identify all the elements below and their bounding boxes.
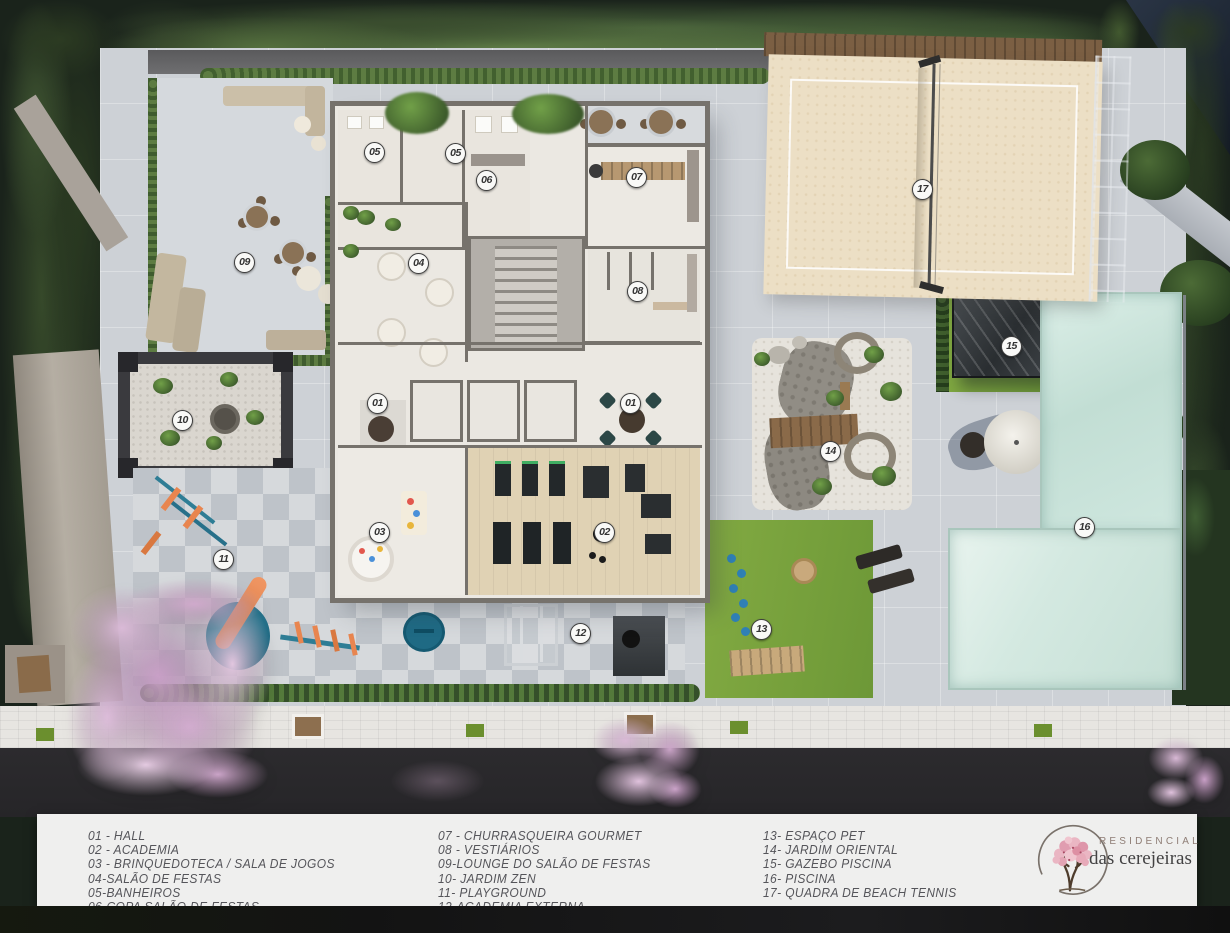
- stairs: [495, 246, 557, 342]
- terrace-07-dining-1: [589, 110, 613, 134]
- zen-plant-5: [206, 436, 222, 450]
- salao-table-1: [377, 252, 406, 281]
- building: [335, 106, 705, 598]
- legend-item: 05-BANHEIROS: [88, 886, 335, 900]
- tree-overhang-1: [385, 92, 449, 134]
- outdoor-gym-bar-2: [540, 606, 543, 662]
- pet-pole-4: [739, 599, 748, 608]
- furniture-dining-set-1: [246, 206, 268, 228]
- room-vestiarios: [588, 249, 700, 341]
- sidewalk-tree-pit-3: [730, 721, 748, 734]
- zen-plant-2: [220, 372, 238, 387]
- cherry-tree-large: [50, 568, 290, 808]
- salao-plant-1: [343, 206, 359, 220]
- bath-court-plant-1: [357, 210, 375, 225]
- zen-post-2: [273, 352, 293, 372]
- hall-small-room-1: [410, 380, 463, 442]
- hall-small-room-2: [467, 380, 520, 442]
- area-beach-tennis: [763, 54, 1102, 302]
- outdoor-gym-grill: [622, 630, 640, 648]
- hall-left-rug: [368, 416, 394, 442]
- area-espaco-pet: [705, 520, 873, 698]
- gym-machine-2: [625, 464, 645, 492]
- legend-item: 09-LOUNGE DO SALÃO DE FESTAS: [438, 857, 651, 871]
- gym-weight-ball: [593, 526, 609, 542]
- zen-plant-4: [160, 430, 180, 446]
- ball-pit-ball-3: [377, 546, 383, 552]
- gym-station-1: [493, 522, 511, 564]
- salao-plant-2: [343, 244, 359, 258]
- pet-pole-5: [731, 613, 740, 622]
- pool-side-table: [960, 432, 986, 458]
- legend-item: 10- JARDIM ZEN: [438, 872, 651, 886]
- area-jardim-oriental: [752, 330, 917, 515]
- court-net-anchor-bottom: [919, 281, 944, 294]
- gym-treadmill-1: [495, 464, 511, 496]
- sidewalk-tree-pit-2: [466, 724, 484, 737]
- pet-barrel: [791, 558, 817, 584]
- entry-mat: [17, 655, 51, 693]
- legend-item: 03 - BRINQUEDOTECA / SALA DE JOGOS: [88, 857, 335, 871]
- wall-07-left: [585, 106, 588, 246]
- logo-text-das-cerejeiras: das cerejeiras: [1089, 848, 1192, 870]
- legend-item: 08 - VESTIÁRIOS: [438, 843, 651, 857]
- gym-treadmill-3: [549, 464, 565, 496]
- furniture-pouf-2: [311, 136, 326, 151]
- bbq-counter: [687, 150, 699, 222]
- area-lounge-salao: [148, 78, 333, 366]
- bath-fixture-1: [347, 116, 362, 129]
- pet-pole-3: [729, 584, 738, 593]
- legend-item: 14- JARDIM ORIENTAL: [763, 843, 957, 857]
- oriental-deck-bridge: [769, 414, 858, 449]
- furniture-pouf-1: [294, 116, 311, 133]
- wall-academia-left: [465, 448, 468, 595]
- terrace-07-dining-2: [649, 110, 673, 134]
- gym-station-2: [523, 522, 541, 564]
- legend-column-1: 01 - HALL02 - ACADEMIA03 - BRINQUEDOTECA…: [88, 829, 345, 914]
- oriental-plant-5: [812, 478, 832, 495]
- gym-machine-1: [583, 466, 609, 498]
- bath-fixture-2: [369, 116, 384, 129]
- oriental-plant-6: [754, 352, 770, 366]
- terrace-hedge-right: [325, 196, 333, 358]
- legend-item: 16- PISCINA: [763, 872, 957, 886]
- gym-dumbbell-2: [599, 556, 606, 563]
- cherry-tree-right: [1138, 728, 1230, 814]
- gym-dumbbell-1: [589, 552, 596, 559]
- wall-08-stall-1: [607, 252, 610, 290]
- tree-overhang-2: [512, 94, 584, 134]
- bath-court-plant-2: [385, 218, 401, 231]
- wall-hall-top: [338, 342, 702, 345]
- legend-column-2: 07 - CHURRASQUEIRA GOURMET08 - VESTIÁRIO…: [438, 829, 659, 914]
- zen-post-1: [118, 352, 138, 372]
- hall-right-table: [619, 407, 645, 433]
- cherry-tree-mid: [578, 708, 713, 816]
- legend-item: 13- ESPAÇO PET: [763, 829, 957, 843]
- gazebo-hedge: [936, 292, 949, 392]
- wall-salao-right: [465, 202, 468, 362]
- ball-pit-ball-2: [369, 556, 375, 562]
- hall-right-chair-2: [644, 391, 662, 409]
- play-mat-dot-3: [407, 522, 414, 529]
- hall-right-chair-1: [598, 391, 616, 409]
- legend-item: 02 - ACADEMIA: [88, 843, 335, 857]
- sidewalk-planter-1: [292, 714, 324, 739]
- gym-station-3: [553, 522, 571, 564]
- oriental-plant-1: [864, 346, 884, 363]
- area-jardim-zen: [118, 352, 293, 478]
- court-fence: [1089, 56, 1132, 303]
- outdoor-gym-bar-1: [520, 606, 523, 662]
- gym-rack-right-2: [645, 534, 671, 554]
- tree-right-1: [1120, 140, 1190, 200]
- furniture-sofa-bottom: [266, 330, 326, 350]
- legend-panel: 01 - HALL02 - ACADEMIA03 - BRINQUEDOTECA…: [37, 814, 1197, 906]
- legend-item: 17- QUADRA DE BEACH TENNIS: [763, 886, 957, 900]
- wall-bath-h1: [338, 202, 465, 205]
- court-net-anchor-top: [918, 55, 941, 68]
- zen-plant-3: [246, 410, 264, 425]
- oriental-rock-1: [768, 346, 790, 364]
- furniture-round-table-1: [296, 266, 321, 291]
- vestiario-bench: [653, 302, 689, 310]
- bath-fixture-4: [475, 116, 492, 133]
- zen-plant-1: [153, 378, 173, 394]
- umbrella-pole: [1014, 440, 1019, 445]
- copa-counter: [471, 154, 525, 166]
- oriental-plant-4: [872, 466, 896, 486]
- sidewalk-tree-pit-4: [1034, 724, 1052, 737]
- oriental-plant-2: [880, 382, 902, 401]
- bottom-road-strip: [0, 906, 1230, 933]
- furniture-dining-set-2: [282, 242, 304, 264]
- pet-pole-2: [737, 569, 746, 578]
- oriental-plant-3: [826, 390, 844, 406]
- pool-fence-line: [1183, 295, 1186, 690]
- site-plan-render: 01010203040505060708091011121314151617 0…: [0, 0, 1230, 933]
- logo-text-residencial: RESIDENCIAL: [1099, 836, 1201, 847]
- play-mat-dot-1: [407, 498, 414, 505]
- legend-item: 04-SALÃO DE FESTAS: [88, 872, 335, 886]
- hall-small-room-3: [524, 380, 577, 442]
- playground-spinner-blade: [414, 629, 434, 633]
- vestiario-lockers: [687, 254, 697, 312]
- play-mat-dot-2: [413, 510, 420, 517]
- outdoor-gym-pergola: [613, 616, 665, 676]
- gym-treadmill-2: [522, 464, 538, 496]
- bbq-table: [601, 162, 685, 180]
- logo-blossoms: [1052, 836, 1092, 866]
- legend-item: 15- GAZEBO PISCINA: [763, 857, 957, 871]
- area-piscina-horizontal: [948, 528, 1182, 690]
- gym-rack-right-1: [641, 494, 671, 518]
- wall-08-stall-2: [629, 252, 632, 290]
- legend-item: 07 - CHURRASQUEIRA GOURMET: [438, 829, 651, 843]
- wall-08-stall-3: [651, 252, 654, 290]
- salao-table-2: [425, 278, 454, 307]
- gazebo-piscina: [952, 294, 1054, 378]
- pet-ramp: [729, 645, 805, 676]
- legend-item: 01 - HALL: [88, 829, 335, 843]
- zen-fire-bowl: [210, 404, 240, 434]
- road-petal-drift: [390, 760, 485, 802]
- outdoor-gym-frame: [504, 604, 558, 666]
- ball-pit-ball-1: [359, 548, 365, 554]
- bbq-grill: [589, 164, 603, 178]
- area-piscina-vertical: [1040, 292, 1182, 535]
- pet-pole-6: [741, 627, 750, 636]
- pet-pole-1: [727, 554, 736, 563]
- legend-item: 11- PLAYGROUND: [438, 886, 651, 900]
- legend-column-3: 13- ESPAÇO PET14- JARDIM ORIENTAL15- GAZ…: [763, 829, 965, 900]
- oriental-rock-2: [792, 336, 807, 349]
